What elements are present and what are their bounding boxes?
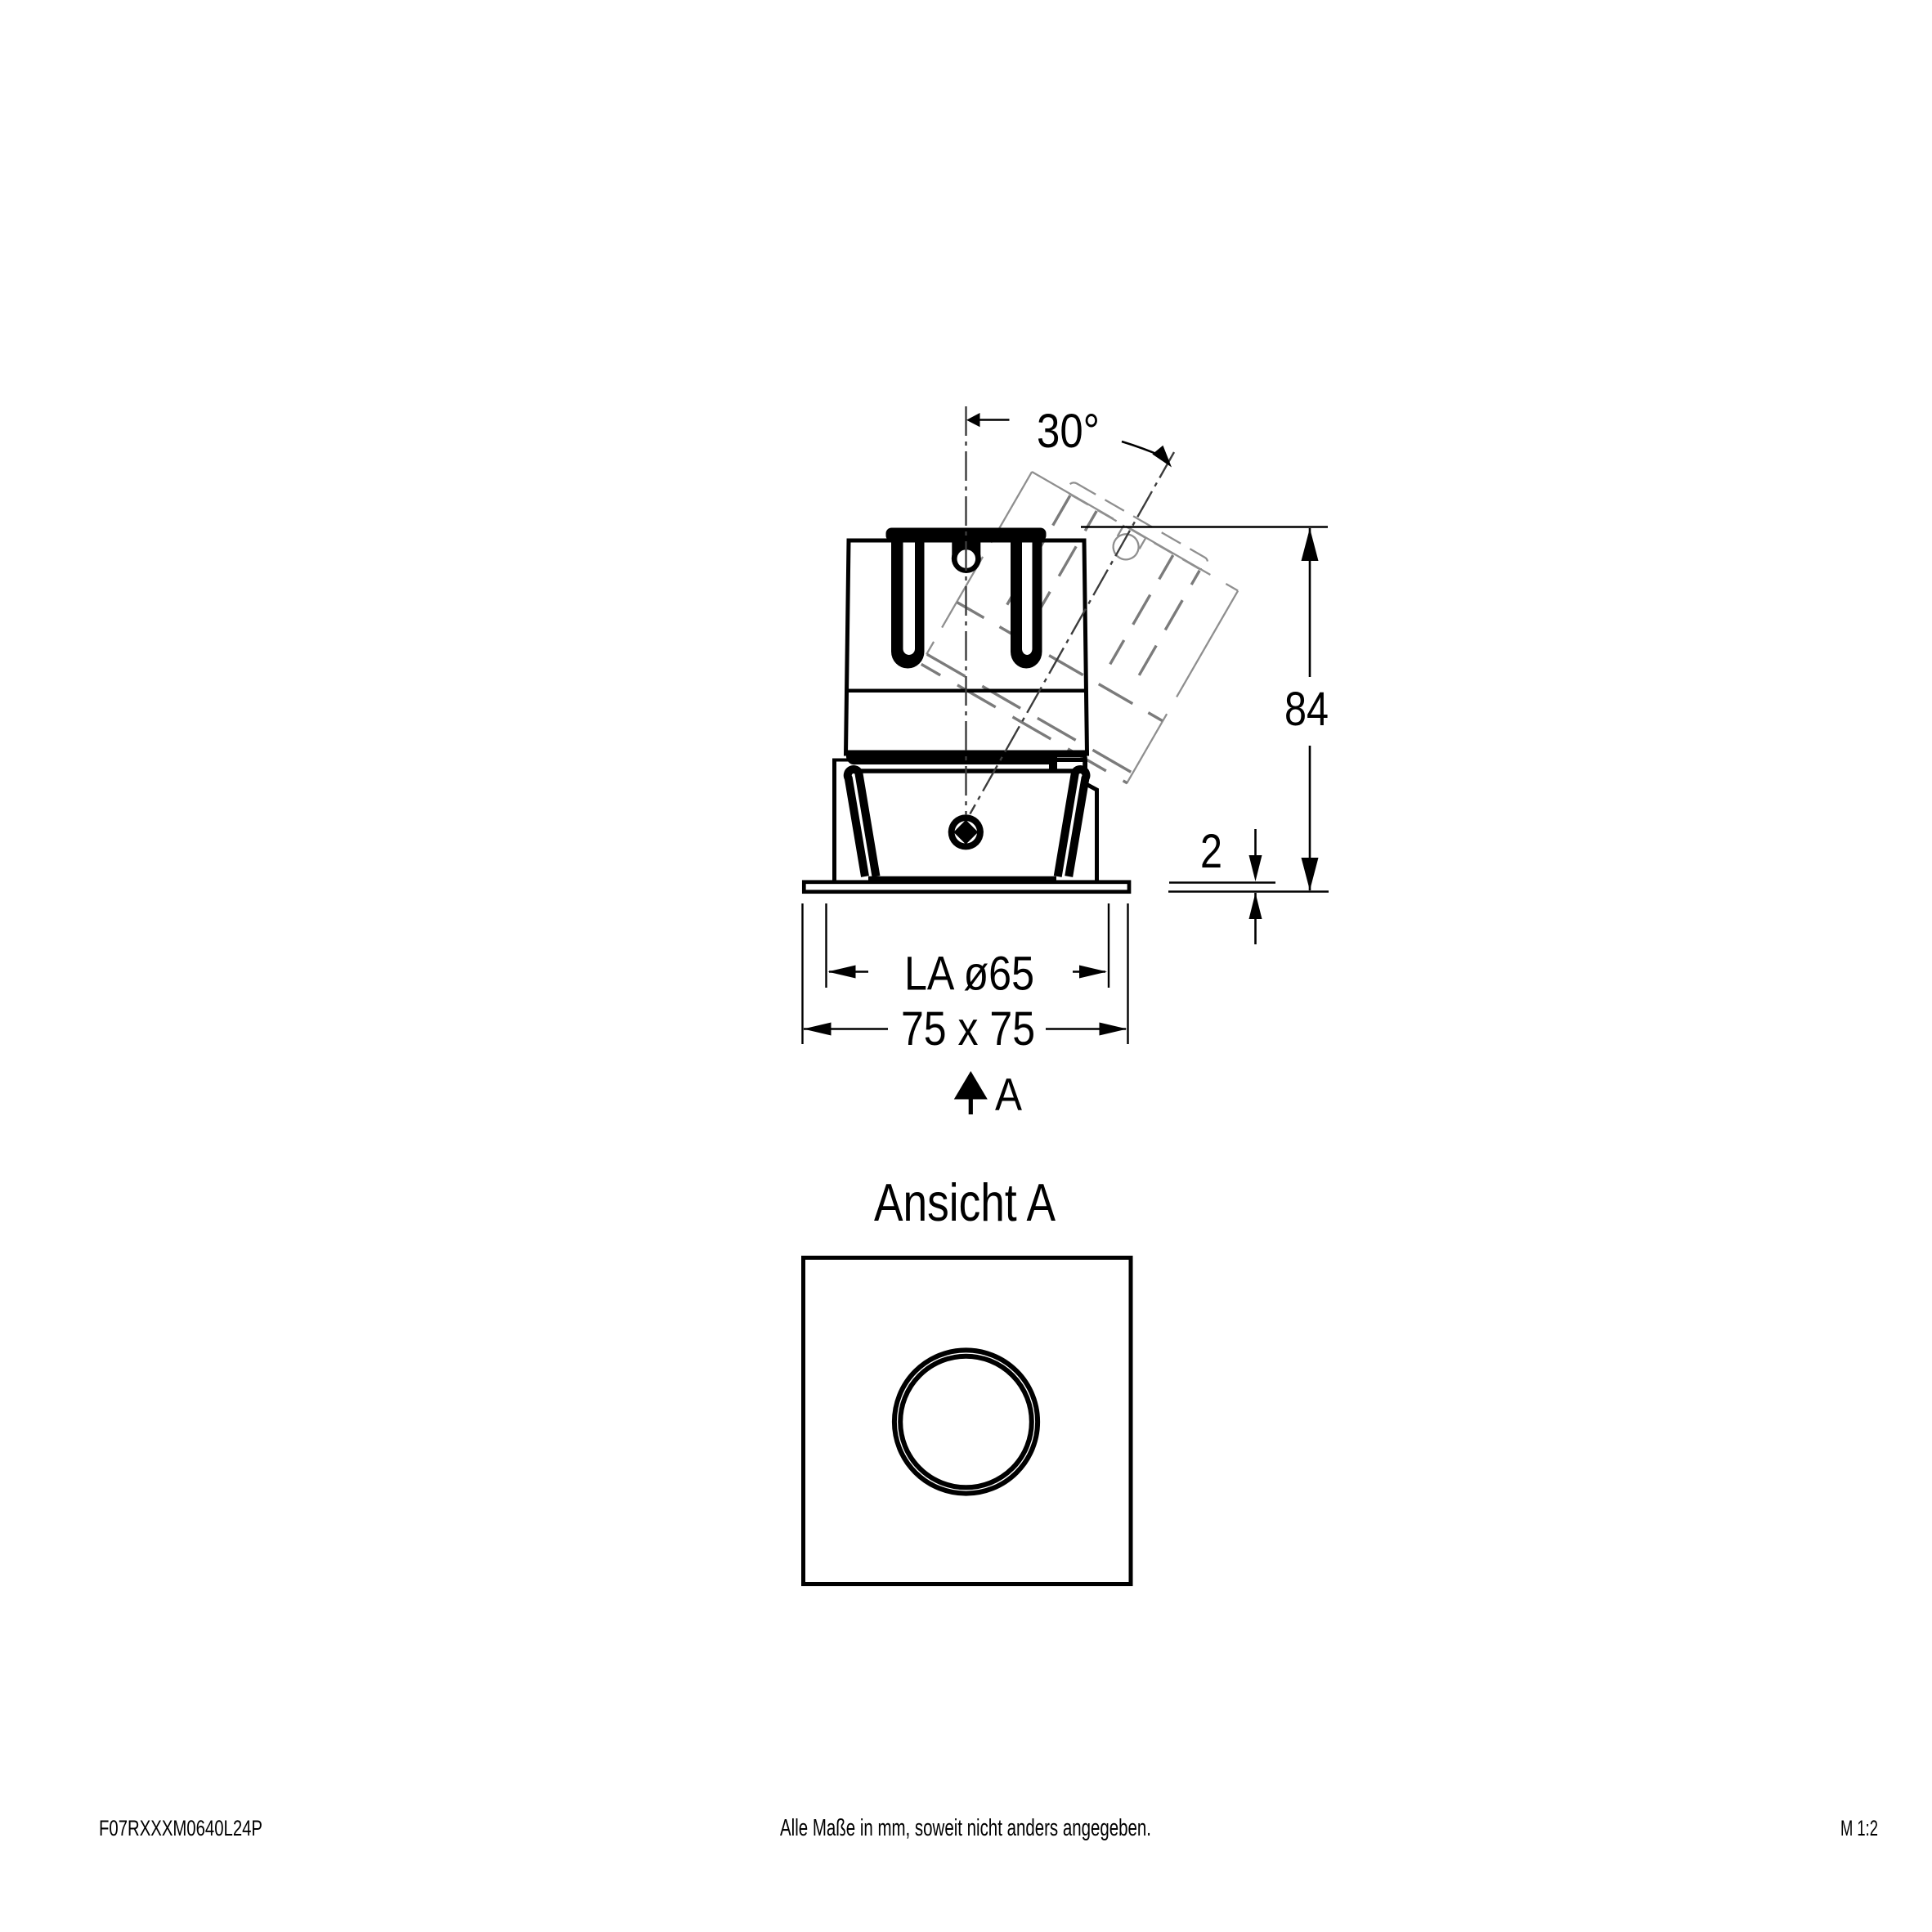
svg-text:30°: 30° [1037,405,1100,458]
svg-text:2: 2 [1200,825,1222,878]
svg-text:84: 84 [1284,683,1329,736]
svg-text:F07RXXXM0640L24P: F07RXXXM0640L24P [99,1816,262,1840]
svg-text:Alle Maße in mm, soweit nicht: Alle Maße in mm, soweit nicht anders ang… [780,1815,1151,1841]
svg-text:LA ø65: LA ø65 [904,948,1034,1001]
svg-text:Ansicht A: Ansicht A [874,1172,1056,1232]
svg-text:A: A [995,1069,1023,1120]
svg-text:75 x 75: 75 x 75 [901,1002,1035,1056]
svg-text:M 1:2: M 1:2 [1840,1816,1878,1840]
